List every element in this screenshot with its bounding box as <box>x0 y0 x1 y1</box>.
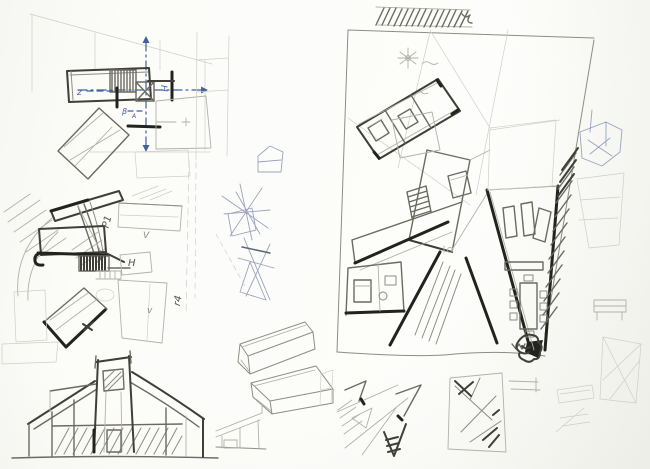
sketch-scan-canvas: z H β A <box>0 0 650 469</box>
arrow-right-icon <box>201 87 208 94</box>
axo-box-upper <box>238 322 315 374</box>
annotation-v-upper: V <box>143 231 150 241</box>
triangle-study <box>238 238 278 300</box>
wedge-wall-left <box>487 190 531 352</box>
rotated-bar <box>51 191 123 221</box>
sketch-concept-lines <box>195 32 283 300</box>
thumbnail-plan-right <box>448 373 506 452</box>
arrow-up-icon <box>143 36 150 43</box>
annotation-h: H <box>158 85 168 92</box>
trapezoid-plan-study <box>577 173 624 248</box>
sketch-plan-study-mid-left: P1 V H v r4 <box>4 160 189 347</box>
sketch-elevation <box>2 342 218 458</box>
wedge-living-room <box>487 120 558 362</box>
sketchbook-page: z H β A <box>0 0 650 469</box>
annotation-r4: r4 <box>172 295 185 307</box>
wire-box-study <box>580 110 622 166</box>
wing-bedrooms <box>357 79 460 159</box>
door <box>107 430 121 452</box>
annotation-z: z <box>76 88 82 98</box>
edge-hatch <box>541 148 578 329</box>
plan-boundary <box>337 30 594 352</box>
framed-diagonals-study <box>600 337 641 403</box>
rotated-wing <box>58 108 129 179</box>
bed-icon <box>354 280 371 302</box>
wing-stairs <box>392 112 471 252</box>
starburst-study <box>222 184 270 240</box>
rotated-dark-volume <box>44 288 107 347</box>
annotation-h2: H <box>128 258 136 269</box>
bed-icon <box>368 120 389 141</box>
right-wing-lower <box>118 280 167 343</box>
ground-line <box>12 457 218 459</box>
lounge-chair-icon <box>533 208 551 242</box>
annotation-a: A <box>131 113 136 120</box>
sketch-axonometric-boxes <box>216 322 333 449</box>
thumbnail-plan-left <box>337 381 421 456</box>
wing-diagonal <box>352 150 490 270</box>
sketch-thumbnail-plans <box>337 373 540 456</box>
top-hatch-band <box>376 7 472 27</box>
sketch-plan-study-top-left: z H β A <box>30 14 212 179</box>
sketch-main-floor-plan <box>337 7 594 362</box>
annotation-beta: β <box>121 107 127 116</box>
house-outline <box>258 146 283 172</box>
sketch-right-margin <box>556 110 641 432</box>
compass-doodle <box>398 48 438 94</box>
annotation-p1: P1 <box>101 215 115 230</box>
light-room-outline <box>156 96 211 149</box>
lounge-chair-icon <box>503 206 517 238</box>
lounge-chair-icon <box>521 202 535 236</box>
annotation-v-lower: v <box>147 306 153 316</box>
bench-study <box>594 300 626 320</box>
arrow-down-icon <box>143 145 150 152</box>
room-bottom-left <box>346 262 404 315</box>
faint-table-studies <box>556 385 594 432</box>
table-icon <box>379 292 387 300</box>
small-elevation-thumb <box>216 405 266 449</box>
